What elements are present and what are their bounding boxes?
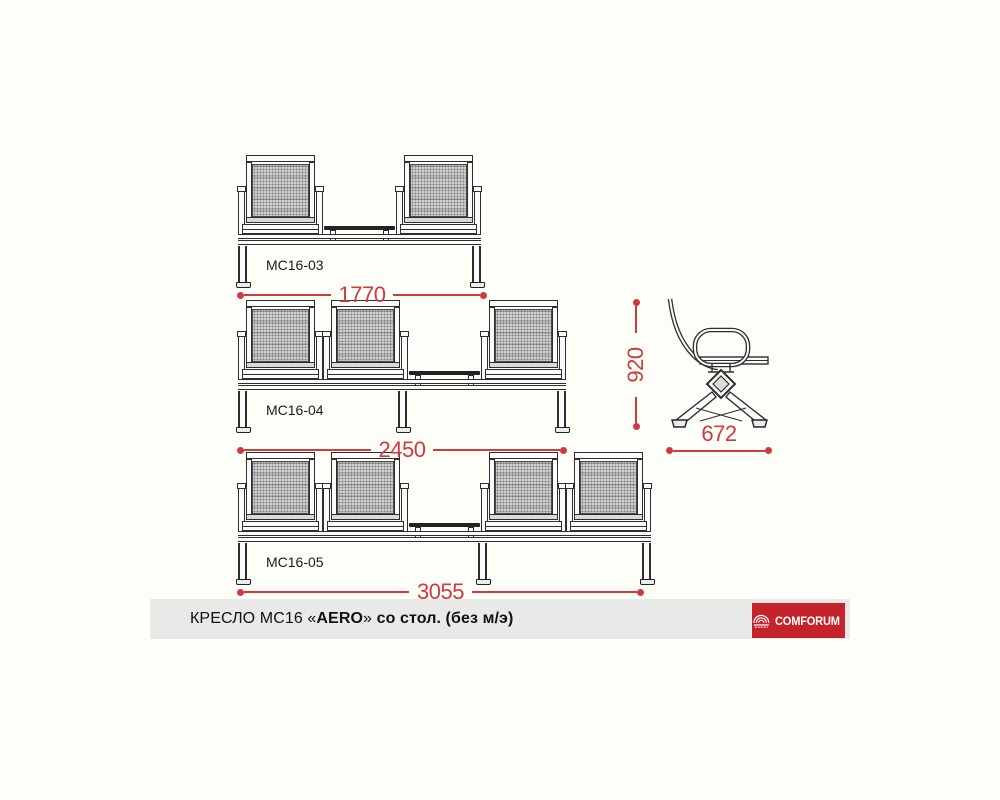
backrest-post-right	[309, 162, 315, 222]
backrest-post-right	[637, 459, 643, 519]
bench-model-label: МС16-04	[266, 402, 324, 418]
bench-leg	[238, 543, 247, 580]
bench-beam-upper	[238, 531, 651, 536]
seat-edge-bar	[489, 362, 558, 368]
between-seats-table	[408, 300, 481, 391]
dimension-endpoint-dot	[765, 447, 772, 454]
dimension-line	[244, 591, 409, 593]
dimension-line	[433, 449, 560, 451]
seat-front-view	[481, 452, 566, 532]
dimension-chair-height: 920	[625, 299, 647, 430]
bench-diagram-МС16-05: МС16-05	[238, 452, 651, 586]
backrest-post-right	[552, 307, 558, 367]
dimension-endpoint-dot	[237, 589, 244, 596]
dimension-value: 2450	[379, 440, 426, 460]
seat-cushion-bars	[242, 521, 319, 531]
bench-model-text: МС16-05	[266, 554, 324, 570]
title-mid: »	[363, 610, 372, 627]
backrest-post-right	[467, 162, 473, 222]
backrest-mesh-panel	[337, 461, 394, 514]
between-seats-table	[323, 155, 396, 246]
seat-cushion-bars	[242, 369, 319, 379]
bench-beam-upper	[238, 234, 481, 239]
dimension-endpoint-dot	[560, 447, 567, 454]
seat-edge-bar	[489, 514, 558, 520]
dimension-line	[244, 294, 331, 296]
seat-front-view	[238, 300, 323, 380]
bench-leg	[238, 391, 247, 428]
bench-model-label: МС16-05	[266, 554, 324, 570]
bench-leg	[238, 246, 247, 283]
dimension-line	[673, 450, 765, 452]
dimension-endpoint-dot	[666, 447, 673, 454]
backrest-mesh-panel	[337, 309, 394, 362]
bench-leg	[642, 543, 651, 580]
dimension-endpoint-dot	[633, 299, 640, 306]
dimension-line	[472, 591, 637, 593]
bench-leg	[557, 391, 566, 428]
dimension-line-row	[666, 447, 772, 454]
logo-text: COMFORUM	[775, 614, 840, 628]
seat-edge-bar	[331, 514, 400, 520]
backrest-mesh-panel	[252, 309, 309, 362]
seat-front-view	[323, 452, 408, 532]
seat-cushion-bars	[485, 521, 562, 531]
dimension-value: 1770	[339, 285, 386, 305]
dimension-line	[635, 306, 637, 333]
backrest-top-bar	[489, 300, 558, 307]
dimension-value-box: 920	[625, 333, 647, 397]
bench-beam-lower	[238, 385, 566, 390]
bench-model-text: МС16-04	[266, 402, 324, 418]
dimension-endpoint-dot	[637, 589, 644, 596]
seat-cushion-bars	[327, 369, 404, 379]
bench-beam-lower	[238, 240, 481, 245]
bench-diagram-МС16-03: МС16-03	[238, 155, 481, 289]
dimension-line	[635, 397, 637, 424]
bench-model-label: МС16-03	[266, 257, 324, 273]
seat-cushion-bars	[327, 521, 404, 531]
backrest-mesh-panel	[580, 461, 637, 514]
product-drawing-canvas: МС16-03МС16-04МС16-05 1770 2450 3055 920…	[0, 0, 1000, 800]
bench-model-text: МС16-03	[266, 257, 324, 273]
seat-front-view	[566, 452, 651, 532]
side-view-chair-drawing	[660, 296, 772, 436]
title-prefix: КРЕСЛО МС16 «	[190, 610, 316, 627]
backrest-post-right	[394, 307, 400, 367]
backrest-post-right	[309, 459, 315, 519]
seat-cushion-bars	[570, 521, 647, 531]
dimension-endpoint-dot	[237, 292, 244, 299]
backrest-mesh-panel	[495, 309, 552, 362]
dimension-endpoint-dot	[480, 292, 487, 299]
seat-edge-bar	[574, 514, 643, 520]
bench-leg	[478, 543, 487, 580]
backrest-post-right	[309, 307, 315, 367]
between-seats-table	[408, 452, 481, 543]
seat-front-view	[323, 300, 408, 380]
comforum-logo: COMFORUM	[752, 603, 845, 638]
dimension-value: 920	[623, 347, 649, 382]
seat-front-view	[396, 155, 481, 235]
backrest-post-right	[394, 459, 400, 519]
title-model-name: AERO	[316, 610, 363, 627]
backrest-mesh-panel	[495, 461, 552, 514]
dimension-line	[393, 294, 480, 296]
seat-front-view	[238, 155, 323, 235]
seat-edge-bar	[331, 362, 400, 368]
seat-edge-bar	[404, 217, 473, 223]
seat-edge-bar	[246, 217, 315, 223]
seat-cushion-bars	[485, 369, 562, 379]
dimension-endpoint-dot	[633, 423, 640, 430]
seat-cushion-bars	[242, 224, 319, 234]
dimension-bench-2450: 2450	[237, 438, 567, 462]
backrest-top-bar	[574, 452, 643, 459]
dimension-bench-1770: 1770	[237, 283, 487, 307]
seat-front-view	[481, 300, 566, 380]
backrest-top-bar	[404, 155, 473, 162]
bench-diagram-МС16-04: МС16-04	[238, 300, 566, 434]
bench-leg	[472, 246, 481, 283]
dimension-line	[244, 449, 371, 451]
seat-edge-bar	[246, 362, 315, 368]
title-bar: КРЕСЛО МС16 «AERO» со стол. (без м/э) CO…	[150, 599, 850, 639]
dimension-endpoint-dot	[237, 447, 244, 454]
backrest-mesh-panel	[252, 164, 309, 217]
title-suffix: со стол. (без м/э)	[372, 610, 513, 627]
backrest-mesh-panel	[410, 164, 467, 217]
bench-beam-lower	[238, 537, 651, 542]
seat-front-view	[238, 452, 323, 532]
backrest-top-bar	[246, 155, 315, 162]
amphitheater-arcs-icon	[752, 612, 771, 630]
backrest-mesh-panel	[252, 461, 309, 514]
product-title: КРЕСЛО МС16 «AERO» со стол. (без м/э)	[190, 610, 513, 628]
seat-cushion-bars	[400, 224, 477, 234]
seat-edge-bar	[246, 514, 315, 520]
bench-beam-upper	[238, 379, 566, 384]
backrest-post-right	[552, 459, 558, 519]
bench-leg	[398, 391, 407, 428]
